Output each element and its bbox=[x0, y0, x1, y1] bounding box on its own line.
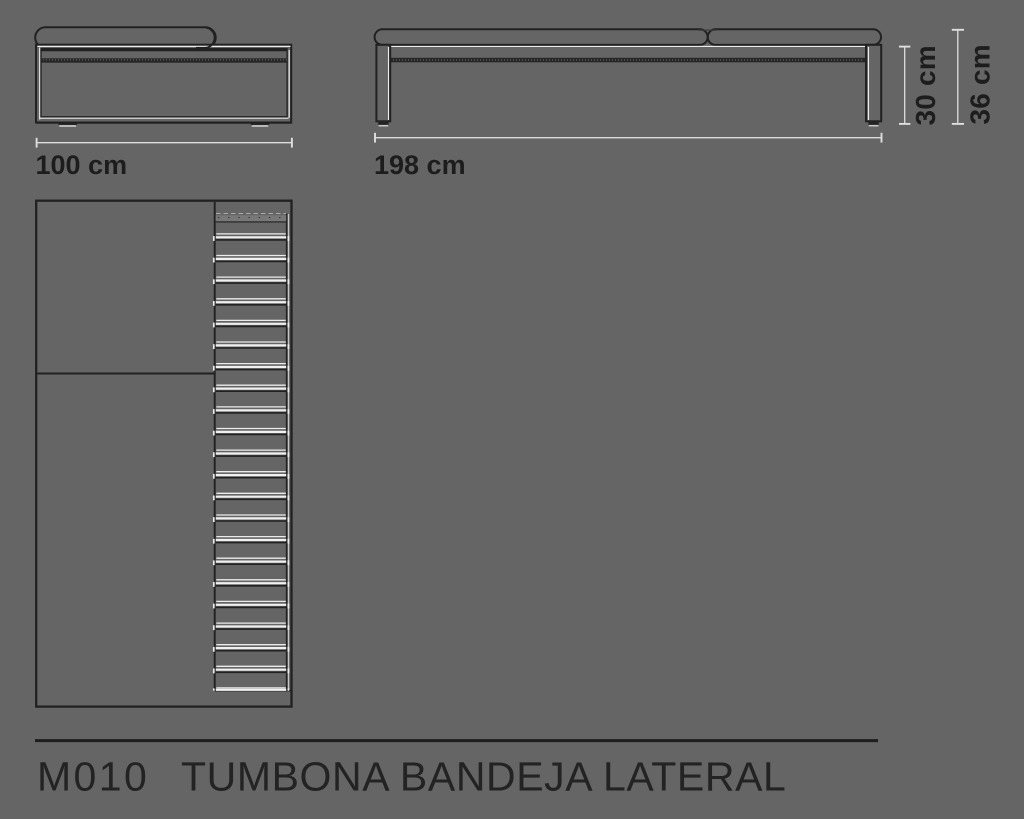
svg-text:TUMBONA BANDEJA LATERAL: TUMBONA BANDEJA LATERAL bbox=[181, 754, 786, 800]
svg-text:198 cm: 198 cm bbox=[374, 150, 466, 180]
svg-text:M010: M010 bbox=[37, 754, 149, 800]
svg-text:100 cm: 100 cm bbox=[36, 150, 128, 180]
svg-text:30 cm: 30 cm bbox=[910, 45, 941, 125]
svg-text:36 cm: 36 cm bbox=[964, 44, 995, 124]
